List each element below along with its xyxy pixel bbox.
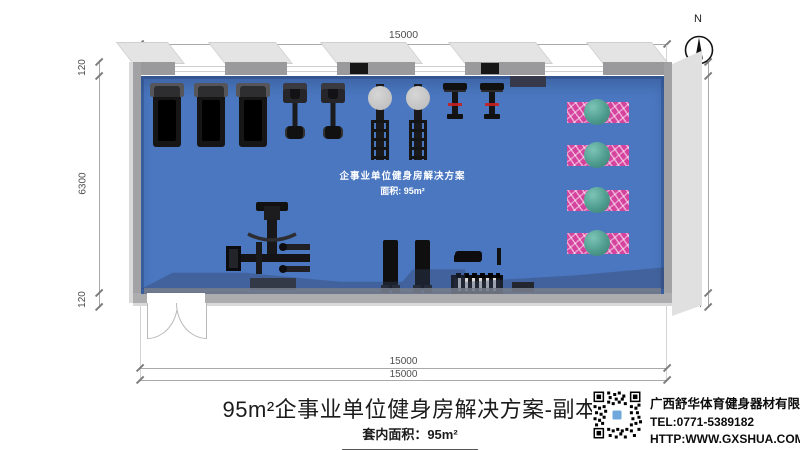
dim-label-left-mid: 6300	[78, 172, 89, 194]
door-leaf-right	[176, 303, 207, 339]
dim-label-left-bottom: 120	[77, 291, 88, 308]
right-wall	[664, 62, 672, 303]
spin-bike-icon	[480, 83, 504, 119]
bottom-wall-outer-edge	[133, 303, 672, 306]
floor-plan-page: 15000 N 120 6300 120 120 6300 120	[0, 0, 800, 450]
dim-tick	[95, 303, 103, 311]
yoga-mat-ball-icon	[567, 233, 629, 254]
floor-shadow	[141, 253, 664, 289]
page-subtitle: 套内面积：95m²	[342, 424, 477, 450]
room-label-line2: 面积: 95m²	[141, 184, 664, 197]
top-wall-dark-panel	[481, 63, 499, 74]
yoga-mat-ball-icon	[567, 102, 629, 123]
upright-bike-icon	[320, 83, 346, 139]
compass-n-label: N	[694, 13, 702, 25]
yoga-mat-ball-icon	[567, 145, 629, 166]
top-wall-segment	[337, 62, 415, 75]
room-label: 企事业单位健身房解决方案 面积: 95m²	[141, 168, 664, 197]
treadmill-icon	[153, 83, 181, 147]
flat-bench-icon	[455, 248, 501, 265]
top-wall-segment	[465, 62, 545, 75]
window-bay-roof	[116, 42, 185, 64]
qr-code-icon	[592, 390, 642, 440]
elliptical-icon	[405, 84, 431, 160]
company-url: HTTP:WWW.GXSHUA.COM	[650, 432, 800, 446]
spin-bike-icon	[443, 83, 467, 119]
company-name: 广西舒华体育健身器材有限公司	[650, 393, 800, 412]
company-tel: TEL:0771-5389182	[650, 415, 800, 429]
dim-label-top: 15000	[140, 29, 667, 41]
wall-unit-block	[510, 76, 546, 87]
room-label-line1: 企事业单位健身房解决方案	[141, 168, 664, 182]
elliptical-icon	[367, 84, 393, 160]
top-wall-dark-panel	[350, 63, 368, 74]
window-bay-roof	[586, 42, 669, 64]
upright-bike-icon	[282, 83, 308, 139]
door-leaf-left	[147, 303, 178, 339]
dim-line-bottom-outer	[140, 380, 667, 381]
company-text: 广西舒华体育健身器材有限公司 TEL:0771-5389182 HTTP:WWW…	[650, 390, 800, 446]
dim-label-left-top: 120	[77, 59, 88, 76]
company-block: 广西舒华体育健身器材有限公司 TEL:0771-5389182 HTTP:WWW…	[592, 390, 797, 446]
dim-label-bottom-inner: 15000	[140, 356, 667, 367]
window-bay-roof	[448, 42, 553, 64]
bottom-wall	[133, 293, 672, 303]
window-bay-roof	[208, 42, 293, 64]
dim-label-bottom-outer: 15000	[140, 369, 667, 380]
dim-line-left	[99, 60, 100, 308]
window-bay-roof	[320, 42, 423, 64]
top-wall-segment	[603, 62, 672, 75]
treadmill-icon	[239, 83, 267, 147]
left-wall	[133, 62, 141, 303]
dim-tick	[704, 303, 712, 311]
right-wall-3d-face	[672, 48, 702, 316]
dim-line-right	[708, 60, 709, 308]
floor-edge-strip	[144, 288, 661, 294]
gym-floor: 企事业单位健身房解决方案 面积: 95m²	[141, 76, 664, 294]
top-wall-segment	[225, 62, 287, 75]
treadmill-icon	[197, 83, 225, 147]
